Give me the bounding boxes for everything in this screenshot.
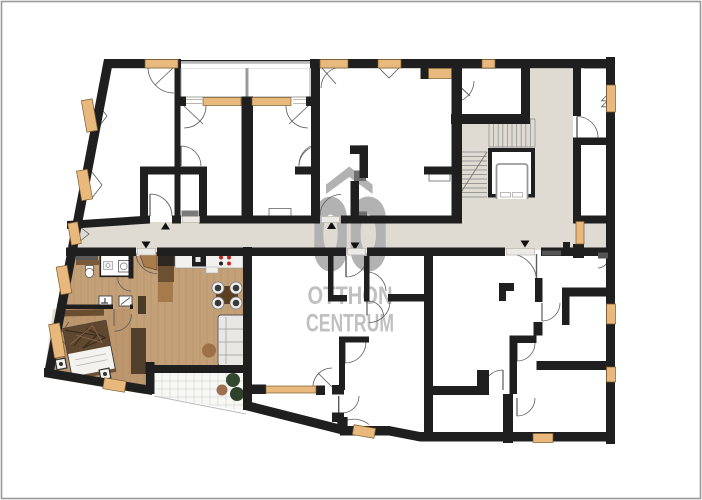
svg-text:CENTRUM: CENTRUM <box>306 309 394 337</box>
